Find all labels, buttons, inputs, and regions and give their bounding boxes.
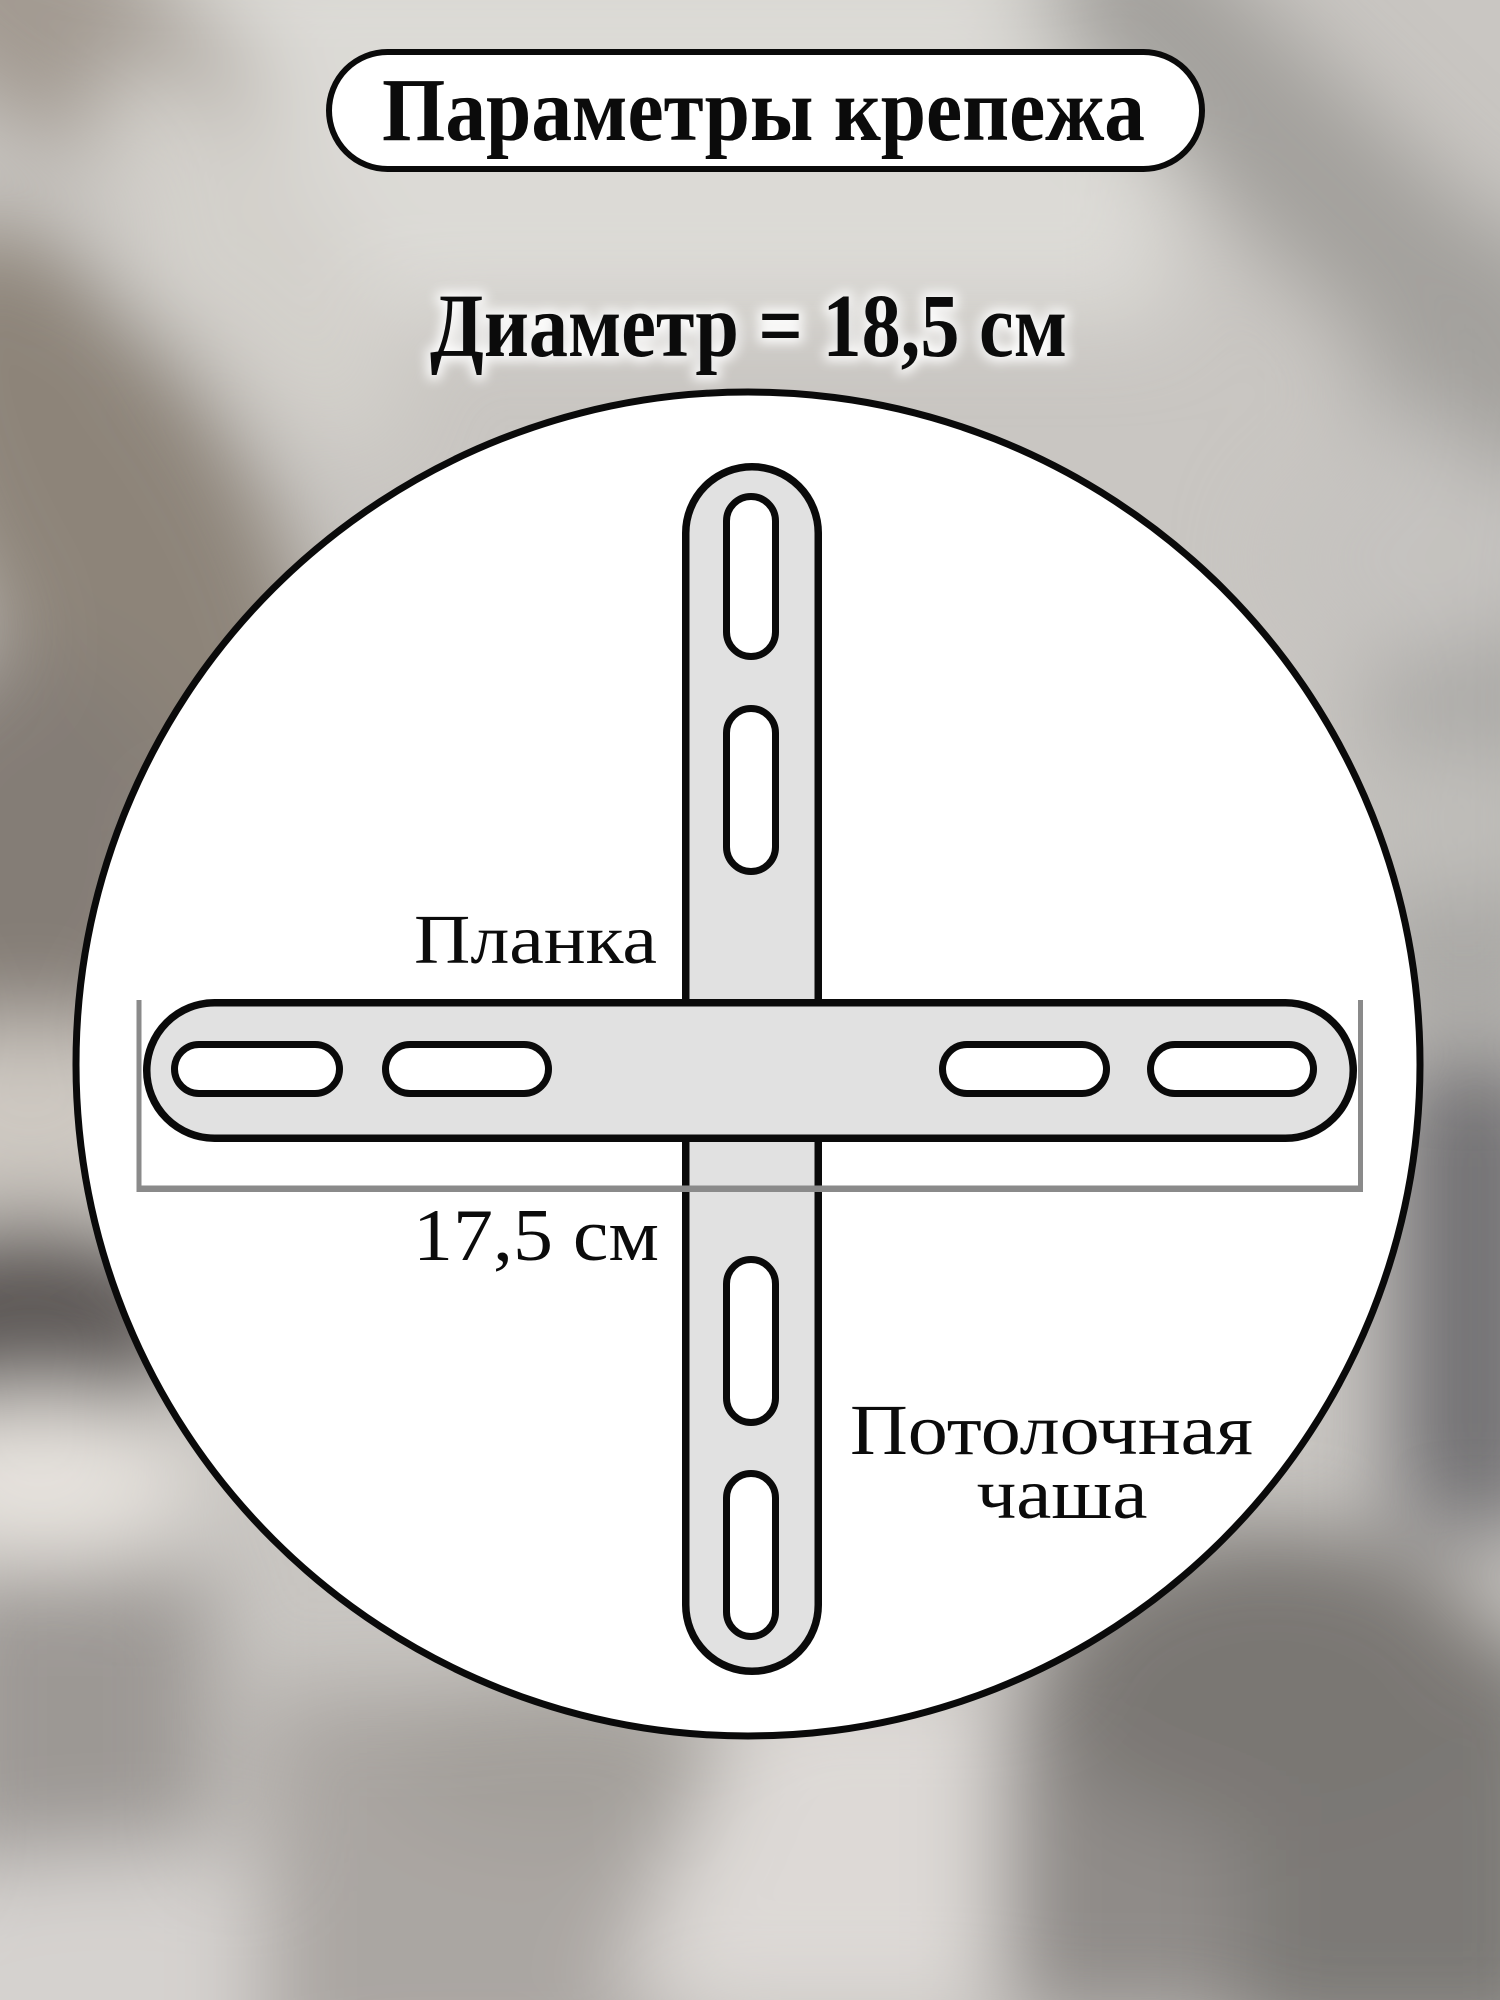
svg-text:17,5 см: 17,5 см	[413, 1195, 659, 1277]
svg-text:Планка: Планка	[414, 902, 657, 979]
svg-text:чаша: чаша	[977, 1454, 1148, 1534]
svg-text:Диаметр = 18,5 см: Диаметр = 18,5 см	[430, 277, 1067, 376]
svg-text:Параметры крепежа: Параметры крепежа	[382, 61, 1145, 160]
